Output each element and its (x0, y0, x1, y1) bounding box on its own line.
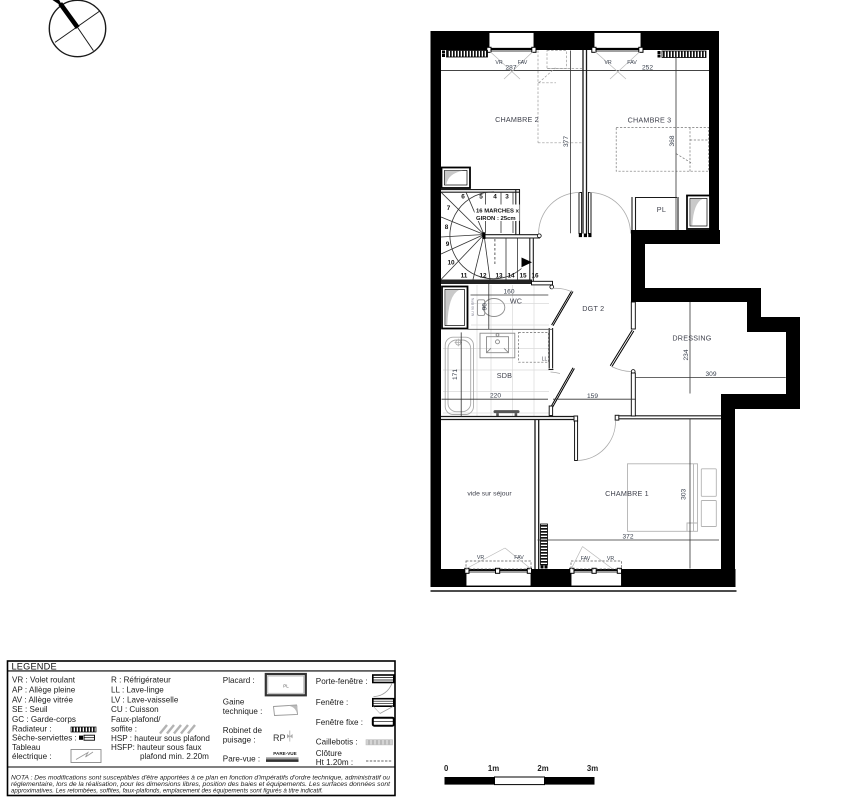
svg-text:10: 10 (447, 260, 455, 267)
svg-text:160: 160 (503, 289, 514, 296)
svg-text:FAV: FAV (518, 60, 528, 66)
svg-text:Robinet de: Robinet de (223, 726, 263, 735)
svg-text:FAV: FAV (514, 555, 524, 561)
svg-text:LL : Lave-linge: LL : Lave-linge (111, 685, 164, 694)
svg-text:Ht 1.20m :: Ht 1.20m : (316, 758, 353, 767)
svg-text:VR: VR (604, 60, 612, 66)
svg-text:DGT 2: DGT 2 (582, 304, 604, 313)
svg-text:WC: WC (510, 296, 522, 305)
svg-text:368: 368 (669, 135, 676, 146)
svg-text:Radiateur :: Radiateur : (12, 725, 52, 734)
svg-text:Fenêtre fixe :: Fenêtre fixe : (316, 718, 363, 727)
svg-text:7: 7 (447, 205, 451, 212)
svg-text:377: 377 (563, 136, 570, 147)
svg-text:14: 14 (507, 273, 515, 280)
svg-text:SE : Seuil: SE : Seuil (12, 705, 48, 714)
svg-text:9: 9 (446, 241, 450, 248)
svg-text:AP : Allège pleine: AP : Allège pleine (12, 685, 76, 694)
svg-text:VR: VR (477, 555, 485, 561)
svg-text:VR: VR (607, 556, 615, 562)
svg-text:PARE-VUE: PARE-VUE (273, 751, 296, 756)
svg-text:R : Réfrigérateur: R : Réfrigérateur (111, 675, 171, 684)
svg-text:VR: VR (495, 60, 503, 66)
svg-text:12: 12 (479, 273, 487, 280)
svg-text:CHAMBRE 3: CHAMBRE 3 (628, 115, 672, 124)
svg-text:2m: 2m (537, 764, 548, 773)
svg-text:DRESSING: DRESSING (672, 334, 711, 343)
svg-text:1m: 1m (488, 764, 499, 773)
svg-text:LEGENDE: LEGENDE (12, 661, 57, 671)
svg-text:Gaine: Gaine (223, 697, 245, 706)
svg-text:16 MARCHES x: 16 MARCHES x (476, 209, 520, 215)
svg-text:GIRON : 25cm: GIRON : 25cm (476, 216, 516, 222)
svg-text:SDB: SDB (497, 371, 512, 380)
svg-text:LV : Lave-vaisselle: LV : Lave-vaisselle (111, 695, 179, 704)
svg-text:303: 303 (681, 488, 688, 499)
svg-text:PL: PL (657, 205, 667, 214)
svg-text:HSP : hauteur sous plafond: HSP : hauteur sous plafond (111, 734, 210, 743)
svg-text:soffite :: soffite : (111, 725, 137, 734)
svg-text:Clôture: Clôture (316, 749, 343, 758)
svg-text:AV : Allège vitrée: AV : Allège vitrée (12, 695, 74, 704)
svg-text:6: 6 (461, 194, 465, 201)
svg-text:CHAMBRE 2: CHAMBRE 2 (495, 115, 539, 124)
svg-text:90: 90 (481, 303, 488, 311)
svg-text:159: 159 (587, 393, 598, 400)
svg-text:0: 0 (444, 764, 449, 773)
svg-text:5: 5 (479, 194, 483, 201)
svg-text:Placard :: Placard : (223, 676, 255, 685)
svg-text:Tableau: Tableau (12, 743, 40, 752)
svg-text:15: 15 (519, 273, 527, 280)
svg-text:GC : Garde-corps: GC : Garde-corps (12, 715, 76, 724)
svg-text:309: 309 (705, 371, 716, 378)
svg-text:220: 220 (490, 393, 501, 400)
svg-text:Faux-plafond/: Faux-plafond/ (111, 715, 161, 724)
svg-text:Porte-fenêtre :: Porte-fenêtre : (316, 677, 368, 686)
svg-text:technique :: technique : (223, 707, 263, 716)
svg-text:NU 90 RFN: NU 90 RFN (471, 297, 475, 316)
svg-text:CHAMBRE 1: CHAMBRE 1 (605, 489, 649, 498)
svg-text:372: 372 (622, 534, 633, 541)
svg-text:LL: LL (542, 357, 548, 363)
svg-text:287: 287 (505, 65, 516, 72)
svg-text:3: 3 (505, 194, 509, 201)
svg-text:252: 252 (642, 65, 653, 72)
svg-text:13: 13 (495, 273, 503, 280)
svg-text:8: 8 (445, 224, 449, 231)
svg-text:Fenêtre :: Fenêtre : (316, 698, 348, 707)
svg-text:3m: 3m (587, 764, 598, 773)
svg-text:171: 171 (452, 369, 459, 380)
svg-text:électrique :: électrique : (12, 752, 52, 761)
svg-text:16: 16 (531, 273, 539, 280)
svg-text:VR : Volet roulant: VR : Volet roulant (12, 675, 76, 684)
svg-text:FAV: FAV (627, 60, 637, 66)
svg-text:vide sur séjour: vide sur séjour (467, 490, 512, 497)
svg-text:FAV: FAV (581, 556, 591, 562)
svg-text:234: 234 (683, 349, 690, 360)
svg-text:11: 11 (461, 273, 468, 280)
svg-text:HSFP: hauteur sous faux: HSFP: hauteur sous faux (111, 743, 201, 752)
svg-text:Pare-vue :: Pare-vue : (223, 754, 260, 763)
svg-text:approximatives. Les retombées,: approximatives. Les retombées, soffites,… (11, 787, 323, 794)
svg-text:plafond min. 2.20m: plafond min. 2.20m (140, 752, 209, 761)
svg-text:Sèche-serviettes :: Sèche-serviettes : (12, 733, 77, 742)
svg-text:RP: RP (273, 733, 286, 743)
svg-text:4: 4 (493, 194, 497, 201)
svg-text:puisage :: puisage : (223, 736, 256, 745)
svg-text:PL: PL (283, 684, 289, 689)
svg-text:Caillebotis :: Caillebotis : (316, 738, 358, 747)
svg-text:CU : Cuisson: CU : Cuisson (111, 705, 159, 714)
